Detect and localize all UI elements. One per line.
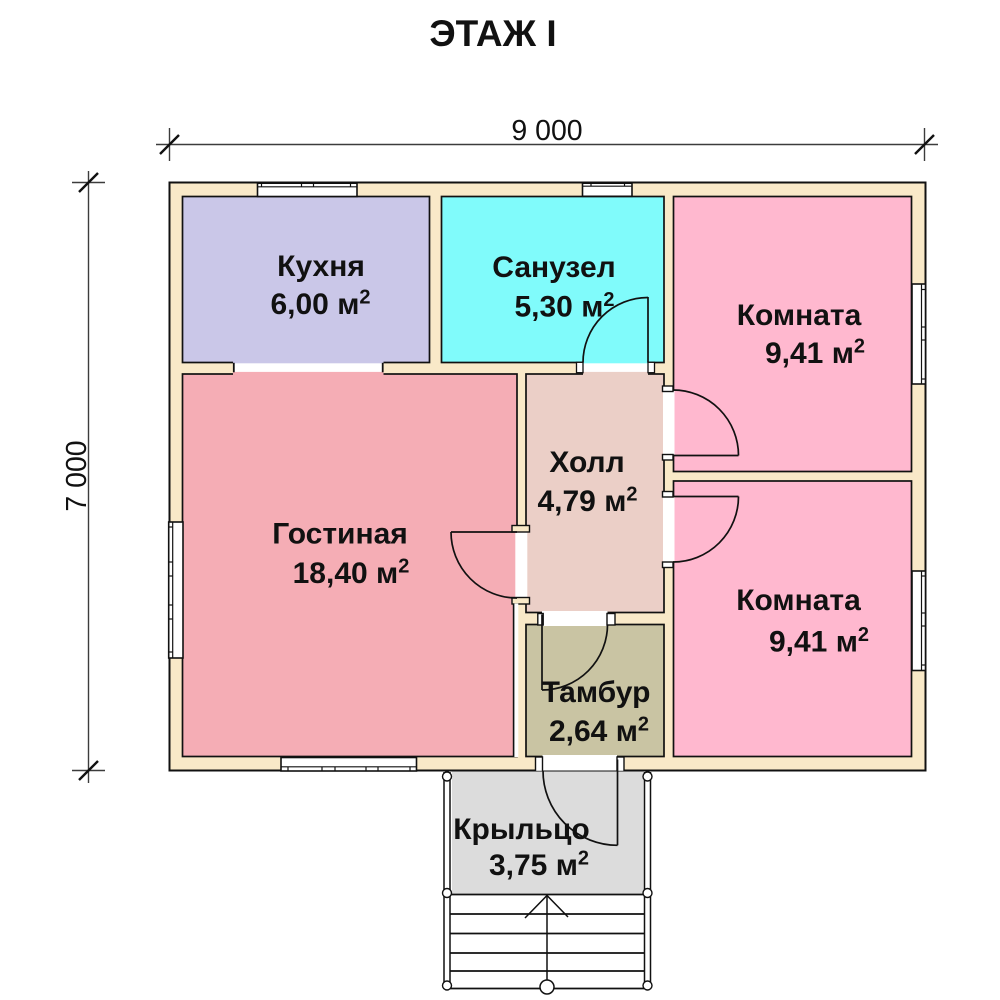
svg-text:Кухня: Кухня: [277, 250, 365, 283]
svg-text:Комната: Комната: [737, 299, 862, 332]
svg-text:9 000: 9 000: [511, 115, 582, 147]
svg-text:6,00 м2: 6,00 м2: [270, 287, 370, 322]
svg-text:Холл: Холл: [549, 446, 624, 479]
svg-text:4,79 м2: 4,79 м2: [537, 484, 637, 519]
svg-text:3,75 м2: 3,75 м2: [489, 848, 589, 883]
svg-text:Тамбур: Тамбур: [542, 676, 651, 709]
svg-text:Гостиная: Гостиная: [272, 518, 408, 551]
svg-text:Санузел: Санузел: [492, 251, 615, 284]
svg-text:ЭТАЖ I: ЭТАЖ I: [429, 13, 556, 54]
svg-text:9,41 м2: 9,41 м2: [769, 624, 869, 659]
svg-text:18,40 м2: 18,40 м2: [293, 556, 410, 591]
svg-text:Комната: Комната: [736, 584, 861, 617]
svg-text:5,30 м2: 5,30 м2: [514, 289, 614, 324]
svg-text:2,64 м2: 2,64 м2: [549, 714, 649, 749]
svg-text:Крыльцо: Крыльцо: [453, 813, 590, 846]
svg-text:9,41 м2: 9,41 м2: [765, 336, 865, 371]
svg-text:7 000: 7 000: [61, 440, 93, 511]
